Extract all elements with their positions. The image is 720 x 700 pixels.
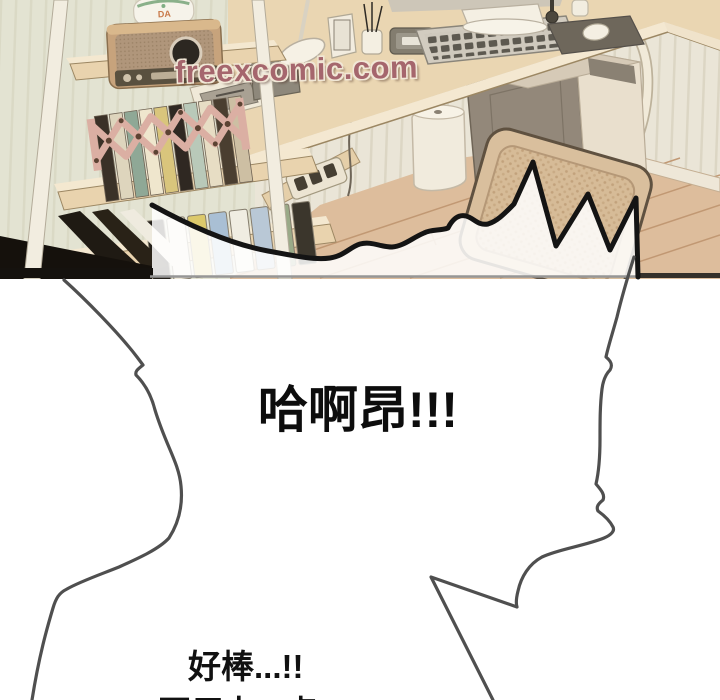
comic-page: DA	[0, 0, 720, 700]
caption-line-2: 再用力...点!!	[158, 686, 339, 700]
speech-bubble-layer	[0, 0, 720, 700]
shout-text: 哈啊昂!!!	[258, 370, 458, 442]
left-figure-outline	[32, 280, 181, 700]
caption-line-1: 好棒...!!	[188, 640, 303, 688]
speech-bubble-fill	[152, 162, 638, 277]
right-figure-outline	[431, 257, 634, 700]
